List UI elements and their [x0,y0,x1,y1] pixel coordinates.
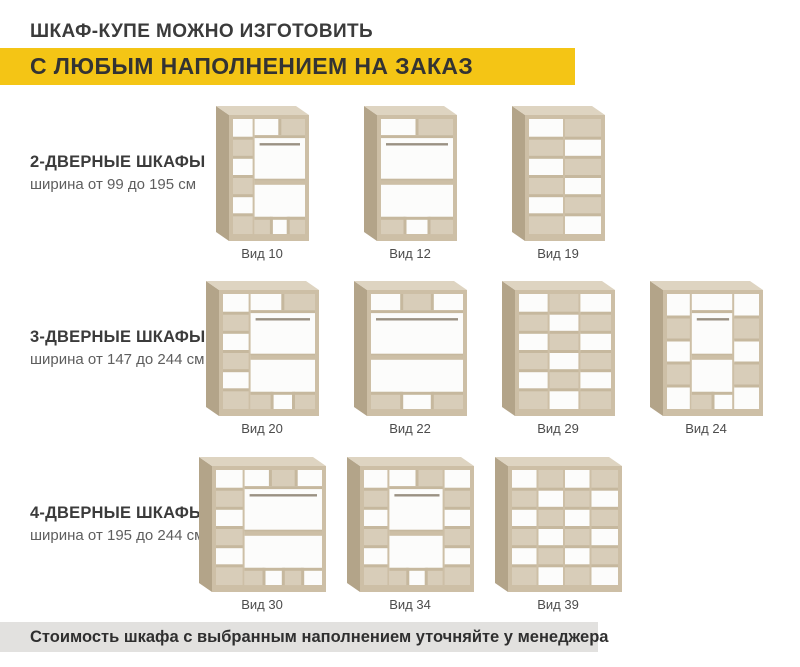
wardrobe-drawing [354,281,467,416]
cabinet-figure: Вид 30 [188,457,336,615]
cabinet-caption: Вид 30 [241,597,283,612]
cabinet-caption: Вид 19 [537,246,579,261]
footer-note-text: Стоимость шкафа с выбранным наполнением … [0,622,598,652]
cabinet-figure: Вид 22 [336,281,484,439]
cabinet-figure: Вид 10 [188,106,336,264]
cabinet-caption: Вид 20 [241,421,283,436]
wardrobe-drawing [364,106,457,241]
wardrobe-drawing [650,281,763,416]
wardrobe-drawing [206,281,319,416]
subtitle-text: С ЛЮБЫМ НАПОЛНЕНИЕМ НА ЗАКАЗ [0,48,575,85]
cabinet-caption: Вид 12 [389,246,431,261]
cabinet-figure: Вид 39 [484,457,632,615]
cabinet-caption: Вид 29 [537,421,579,436]
cabinet-figure: Вид 19 [484,106,632,264]
footer-note-bar: Стоимость шкафа с выбранным наполнением … [0,622,598,652]
wardrobe-drawing [347,457,474,592]
wardrobe-drawing [495,457,622,592]
cabinet-caption: Вид 24 [685,421,727,436]
wardrobe-drawing [216,106,309,241]
subtitle-highlight-bar: С ЛЮБЫМ НАПОЛНЕНИЕМ НА ЗАКАЗ [0,48,575,85]
page-title: ШКАФ-КУПЕ МОЖНО ИЗГОТОВИТЬ [30,21,373,43]
cabinet-figure: Вид 34 [336,457,484,615]
cabinet-figure: Вид 24 [632,281,780,439]
wardrobe-drawing [199,457,326,592]
cabinet-caption: Вид 39 [537,597,579,612]
cabinet-row-2door: 2-ДВЕРНЫЕ ШКАФЫ ширина от 99 до 195 см В… [0,106,800,266]
cabinet-figure: Вид 20 [188,281,336,439]
cabinet-row-4door: 4-ДВЕРНЫЕ ШКАФЫ ширина от 195 до 244 см … [0,457,800,617]
cabinet-row-3door: 3-ДВЕРНЫЕ ШКАФЫ ширина от 147 до 244 см … [0,281,800,441]
wardrobe-drawing [502,281,615,416]
cabinet-caption: Вид 10 [241,246,283,261]
cabinet-caption: Вид 34 [389,597,431,612]
wardrobe-drawing [512,106,605,241]
cabinet-figure: Вид 12 [336,106,484,264]
cabinet-figure: Вид 29 [484,281,632,439]
cabinet-caption: Вид 22 [389,421,431,436]
poster-page: ШКАФ-КУПЕ МОЖНО ИЗГОТОВИТЬ С ЛЮБЫМ НАПОЛ… [0,0,800,667]
